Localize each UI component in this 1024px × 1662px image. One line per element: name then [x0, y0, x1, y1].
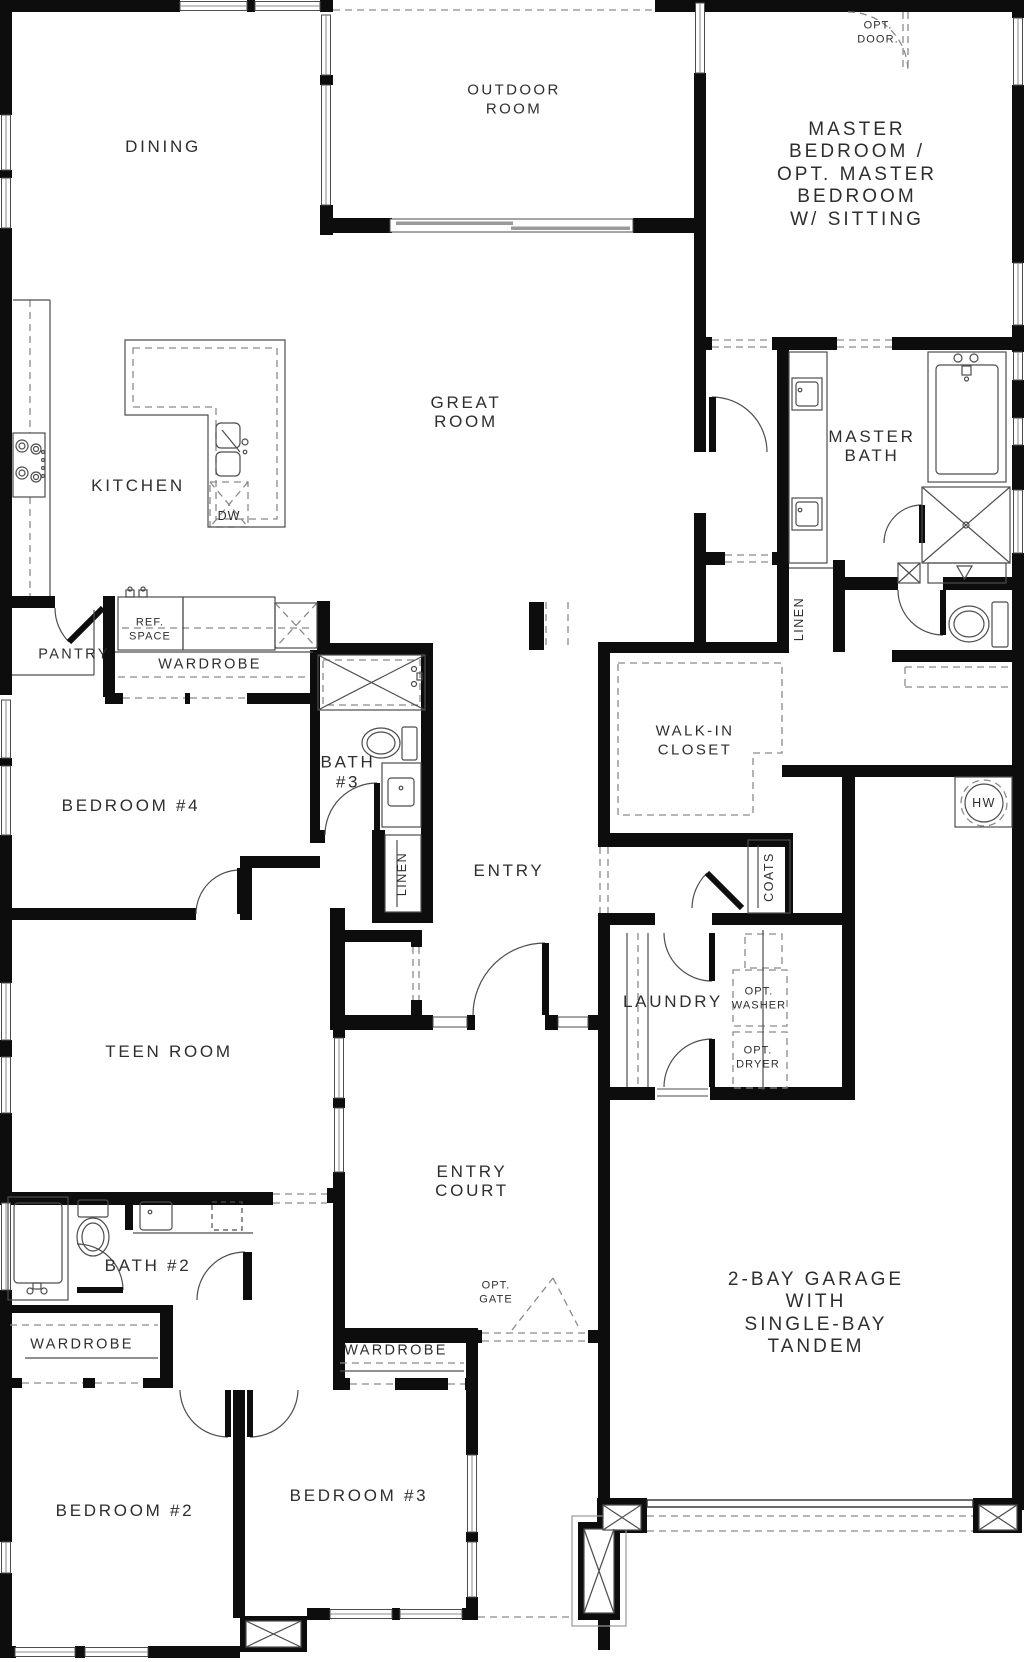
label-entry: ENTRY [474, 861, 545, 881]
counter-box [183, 597, 275, 650]
toilet-room-door-arc [898, 590, 943, 635]
laundry-door-arc-top [664, 933, 712, 981]
bedroom2-door-arc [180, 1390, 228, 1437]
bath2-toilet [77, 1200, 109, 1256]
window-mullions [6, 3, 1018, 1652]
laundry-garage-door-opening [657, 1089, 708, 1096]
label-bedroom4: BEDROOM #4 [62, 796, 201, 816]
pantry-door-arc [55, 608, 69, 642]
kitchen-range [13, 433, 45, 497]
label-laundry: LAUNDRY [623, 992, 723, 1012]
label-bath2: BATH #2 [105, 1256, 192, 1276]
label-master-bedroom: MASTER BEDROOM / OPT. MASTER BEDROOM W/ … [774, 119, 941, 231]
label-wardrobe-bed4: WARDROBE [158, 657, 261, 674]
master-hall-door-arc [712, 397, 767, 452]
label-hw: HW [972, 796, 996, 810]
floor-plan-drawing [0, 0, 1024, 1662]
bedroom4-door-arc [196, 870, 240, 914]
floor-plan: DINING OUTDOOR ROOM MASTER BEDROOM / OPT… [0, 0, 1024, 1662]
small-chase-box [898, 563, 920, 583]
bath3-tub [318, 655, 425, 710]
bath2-door-arc [197, 1252, 245, 1300]
structural-x-boxes [246, 1505, 1017, 1647]
pantry-door-leaf [69, 608, 103, 642]
label-teen-room: TEEN ROOM [105, 1042, 232, 1062]
label-dw: DW [218, 509, 241, 523]
label-bath3: BATH #3 [321, 752, 376, 791]
shower-door-arc [884, 505, 922, 543]
label-opt-gate: OPT. GATE [479, 1279, 513, 1308]
label-great-room: GREAT ROOM [431, 393, 502, 431]
label-bedroom2: BEDROOM #2 [56, 1501, 195, 1521]
kitchen-sink [216, 423, 248, 476]
label-kitchen: KITCHEN [91, 476, 185, 496]
label-entry-court: ENTRY COURT [435, 1162, 509, 1200]
garage-door [647, 1500, 973, 1507]
label-linen-master: LINEN [792, 597, 806, 641]
pantry-shelf [12, 610, 94, 675]
coats-door-leaf [707, 873, 742, 908]
outdoor-room-slider [390, 219, 633, 232]
label-opt-dryer: OPT. DRYER [736, 1044, 780, 1073]
coats-door-arc [692, 873, 707, 908]
opt-gate-swing [512, 1278, 553, 1330]
label-opt-washer: OPT. WASHER [732, 985, 786, 1014]
master-vanity [789, 352, 827, 563]
label-wardrobe-bed2: WARDROBE [30, 1337, 133, 1354]
label-garage: 2-BAY GARAGE WITH SINGLE-BAY TANDEM [712, 1269, 920, 1359]
bath3-vanity [382, 763, 421, 827]
kitchen-island [125, 340, 285, 527]
label-dining: DINING [125, 137, 201, 157]
front-door-arc [473, 943, 545, 1015]
master-tub [928, 352, 1006, 482]
laundry-door-arc-bottom [664, 1039, 712, 1087]
label-outdoor-room: OUTDOOR ROOM [467, 81, 560, 119]
walls-layer [0, 0, 1024, 1658]
label-bedroom3: BEDROOM #3 [290, 1486, 429, 1506]
label-ref-space: REF. SPACE [129, 616, 171, 645]
bath2-vanity [133, 1202, 253, 1233]
master-shower [922, 487, 1010, 563]
fixtures-layer [8, 300, 1012, 1626]
label-master-bath: MASTER BATH [828, 427, 915, 465]
label-pantry: PANTRY [38, 647, 109, 664]
windows-layer [2, 2, 1023, 1657]
label-opt-door: OPT. DOOR. [857, 19, 899, 48]
master-toilet [949, 602, 1008, 647]
label-wardrobe-bed3: WARDROBE [344, 1343, 447, 1360]
bedroom3-door-arc [250, 1390, 298, 1437]
label-coats: COATS [762, 852, 776, 902]
label-walkin-closet: WALK-IN CLOSET [656, 722, 735, 760]
label-linen-hall: LINEN [395, 852, 409, 896]
bath2-tub [8, 1197, 68, 1300]
